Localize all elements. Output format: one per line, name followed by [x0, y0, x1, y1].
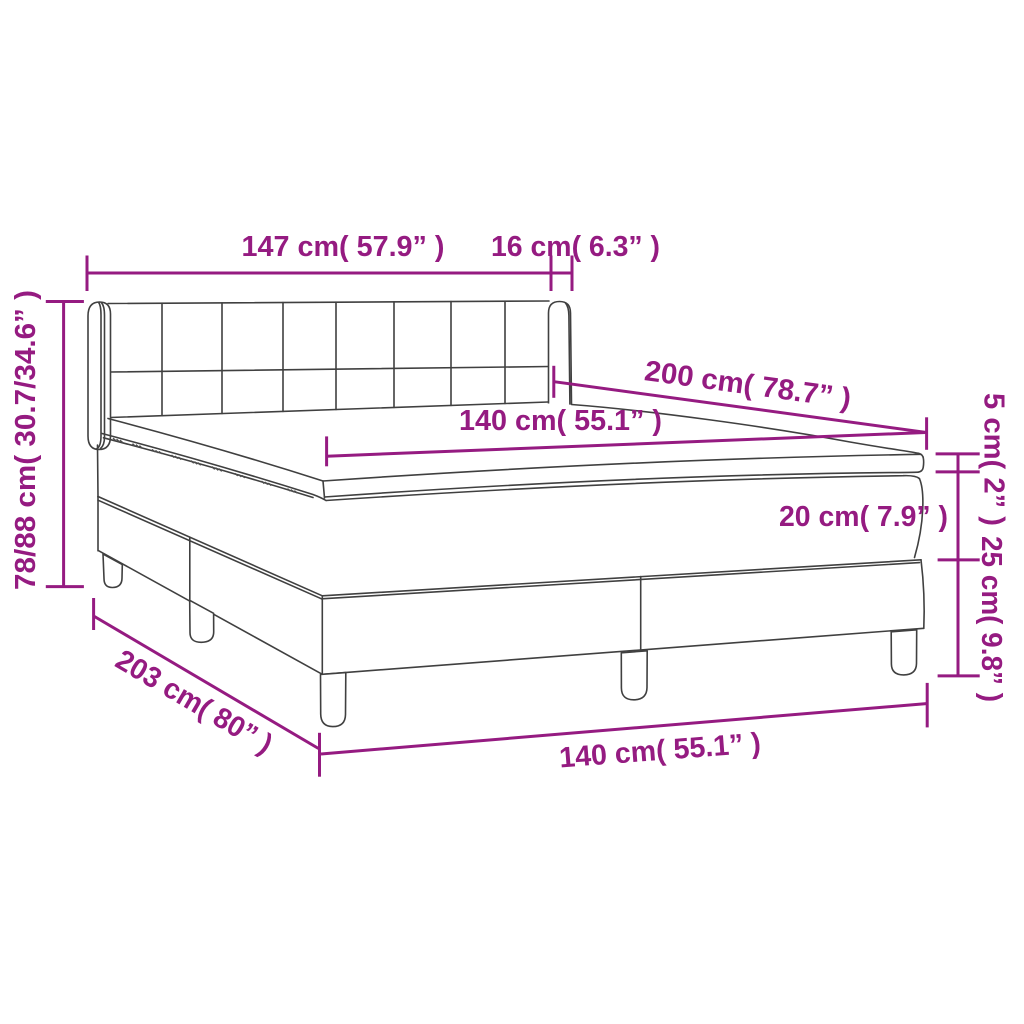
svg-text:25 cm( 9.8” ): 25 cm( 9.8” )	[975, 536, 1007, 702]
svg-text:20 cm( 7.9” ): 20 cm( 7.9” )	[779, 501, 948, 533]
svg-text:140 cm( 55.1” ): 140 cm( 55.1” )	[459, 405, 662, 437]
svg-text:147 cm( 57.9” ): 147 cm( 57.9” )	[242, 231, 445, 263]
svg-text:5 cm( 2” ): 5 cm( 2” )	[978, 393, 1010, 526]
svg-text:16 cm( 6.3” ): 16 cm( 6.3” )	[491, 231, 660, 263]
svg-text:78/88 cm( 30.7/34.6” ): 78/88 cm( 30.7/34.6” )	[10, 290, 42, 590]
